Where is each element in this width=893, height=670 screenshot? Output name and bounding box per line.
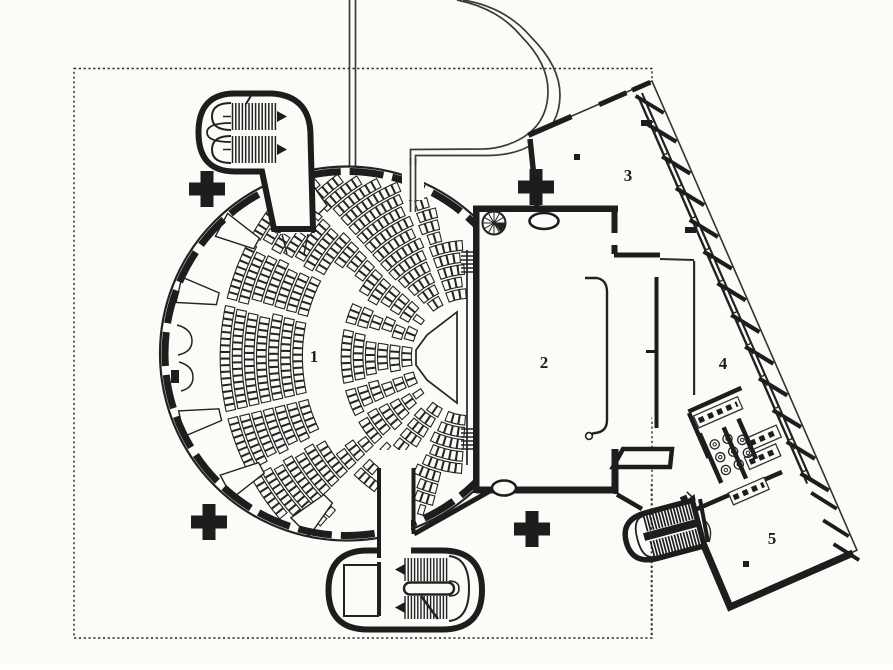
- svg-text:3: 3: [624, 166, 633, 185]
- svg-text:1: 1: [310, 347, 319, 366]
- svg-text:5: 5: [768, 529, 777, 548]
- svg-text:4: 4: [719, 354, 728, 373]
- svg-text:2: 2: [540, 353, 549, 372]
